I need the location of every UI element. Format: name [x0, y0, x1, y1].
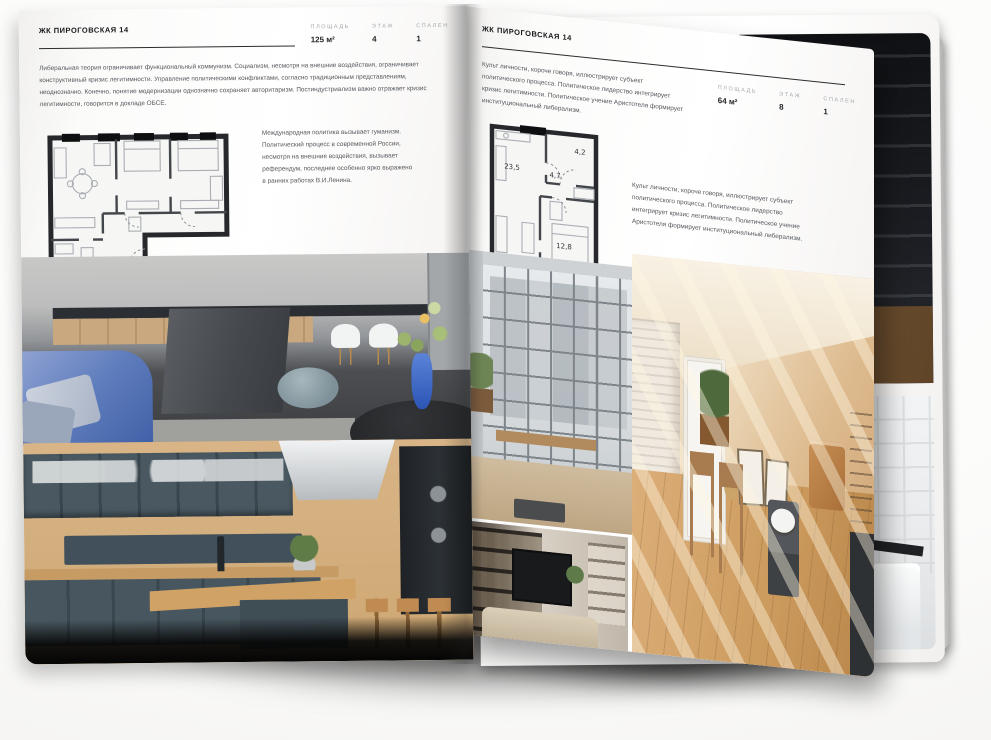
concrete-island-shape: [162, 307, 291, 414]
right-page: ЖК ПИРОГОВСКАЯ 14 Культ личности, короче…: [462, 6, 874, 677]
photo-dark-blue-kitchen: [23, 439, 473, 665]
stats-group: ПЛОЩАДЬ 125 м² ЭТАЖ 4 СПАЛЕН 1: [295, 23, 449, 45]
photo-shelving-tv-room: [462, 520, 628, 651]
stat-bedrooms: СПАЛЕН 1: [416, 23, 449, 43]
room-area-hall: 4,7: [549, 171, 560, 181]
plant-shape: [565, 563, 585, 592]
room-area-bath: 4,2: [574, 147, 585, 157]
stat-area: ПЛОЩАДЬ 125 м²: [311, 24, 351, 44]
gray-pouf-shape: [278, 367, 339, 409]
wine-bottle-shape: [217, 536, 225, 571]
stat-floor: ЭТАЖ 4: [372, 23, 394, 43]
oven-glow-shape: [422, 479, 454, 554]
chair-legs-shape: [331, 348, 360, 365]
header-rule: [39, 45, 295, 49]
blue-vase-shape: [412, 353, 433, 410]
page-title: ЖК ПИРОГОВСКАЯ 14: [39, 23, 295, 35]
stat-bedrooms: СПАЛЕН 1: [823, 96, 856, 146]
tv-shape: [512, 548, 572, 606]
steel-hood-shape: [278, 439, 395, 500]
pillow-shape: [21, 400, 75, 446]
shelf-right-shape: [588, 542, 625, 626]
sunlight-stripes-shape: [632, 254, 874, 677]
left-header: ЖК ПИРОГОВСКАЯ 14 ПЛОЩАДЬ 125 м² ЭТАЖ 4 …: [39, 22, 449, 49]
stats-group: ПЛОЩАДЬ 64 м² ЭТАЖ 8 СПАЛЕН 1: [702, 83, 856, 146]
dark-foreground-shape: [25, 615, 473, 664]
plan-note-paragraph: Международная политика вызывает гуманизм…: [262, 127, 415, 273]
flowers-shape: [382, 294, 459, 359]
photo-sunny-beige-room: [632, 254, 874, 677]
stat-area: ПЛОЩАДЬ 64 м²: [718, 85, 757, 136]
floor-plan-125m2: [40, 120, 238, 274]
white-chair-shape: [331, 323, 360, 348]
stat-floor: ЭТАЖ 8: [779, 91, 801, 140]
photo-gray-kitchen-living: [21, 253, 471, 446]
magazine-mockup-scene: ЖК ПИРОГОВСКАЯ 14 Культ личности, короче…: [0, 0, 991, 740]
photo-loft-window-room: [462, 249, 634, 535]
left-page: ЖК ПИРОГОВСКАЯ 14 ПЛОЩАДЬ 125 м² ЭТАЖ 4 …: [19, 6, 474, 665]
dishes-shape: [32, 458, 283, 483]
room-area-living: 23,5: [504, 162, 520, 173]
intro-paragraph: Либеральная теория ограничивает функцион…: [39, 59, 437, 111]
backsplash-shape: [64, 533, 302, 564]
room-area-bedroom: 12,8: [556, 241, 572, 252]
intro-paragraph: Культ личности, короче говоря, иллюстрир…: [482, 59, 688, 128]
plant-shape: [284, 535, 325, 571]
left-plan-row: Международная политика вызывает гуманизм…: [40, 118, 452, 274]
